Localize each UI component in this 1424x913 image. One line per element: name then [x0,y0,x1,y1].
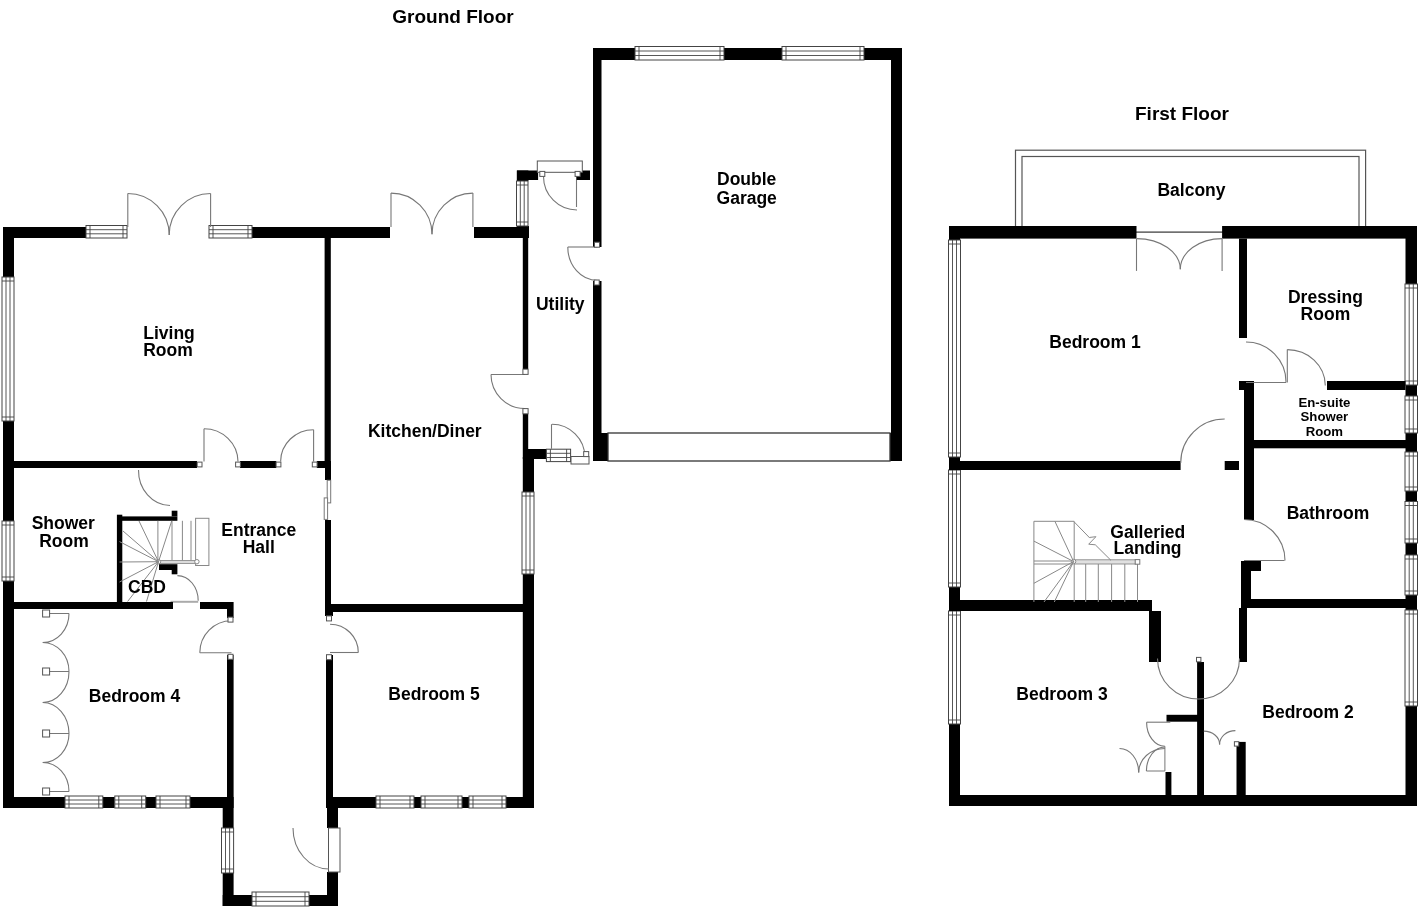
svg-text:Bedroom 3: Bedroom 3 [1016,684,1108,704]
svg-text:Bedroom 1: Bedroom 1 [1049,332,1141,352]
svg-text:CBD: CBD [128,577,166,597]
svg-text:Balcony: Balcony [1157,180,1225,200]
svg-text:Ground Floor: Ground Floor [392,6,514,27]
svg-text:En-suite: En-suite [1298,395,1350,410]
svg-text:Bedroom 4: Bedroom 4 [89,686,181,706]
svg-text:Bedroom 2: Bedroom 2 [1262,702,1354,722]
svg-text:First Floor: First Floor [1135,103,1230,124]
svg-text:Double: Double [717,169,777,189]
svg-text:Room: Room [1306,424,1343,439]
svg-text:Room: Room [39,531,89,551]
svg-text:Hall: Hall [243,537,275,557]
svg-text:Utility: Utility [536,294,585,314]
svg-text:Bedroom 5: Bedroom 5 [388,684,480,704]
svg-text:Landing: Landing [1113,538,1181,558]
svg-text:Garage: Garage [717,188,778,208]
svg-text:Room: Room [143,340,193,360]
svg-text:Room: Room [1301,304,1351,324]
svg-text:Bathroom: Bathroom [1287,503,1370,523]
svg-text:Kitchen/Diner: Kitchen/Diner [368,421,482,441]
svg-text:Shower: Shower [1301,409,1349,424]
